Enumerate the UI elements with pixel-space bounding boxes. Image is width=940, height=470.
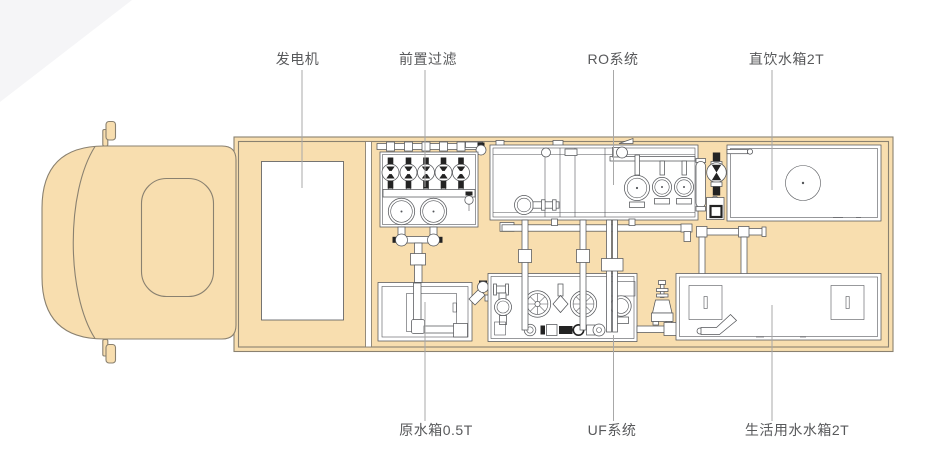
cab-outline bbox=[42, 146, 236, 339]
label-domestic-tank: 生活用水水箱2T bbox=[745, 423, 849, 438]
label-ro-system: RO系统 bbox=[588, 52, 639, 67]
domestic-water-tank bbox=[676, 274, 881, 341]
label-uf-system: UF系统 bbox=[588, 423, 637, 438]
mirror-bottom-head bbox=[106, 345, 116, 364]
label-prefilter: 前置过滤 bbox=[399, 52, 457, 67]
truck-layout-drawing bbox=[0, 0, 940, 470]
body-divider bbox=[366, 142, 372, 348]
label-generator: 发电机 bbox=[276, 52, 320, 67]
mirror-top-head bbox=[106, 122, 116, 141]
diagram-canvas: 发电机 前置过滤 RO系统 直饮水箱2T 原水箱0.5T UF系统 生活用水水箱… bbox=[0, 0, 940, 470]
label-raw-water-tank: 原水箱0.5T bbox=[399, 423, 473, 438]
ro-module bbox=[490, 139, 706, 221]
truck-cab bbox=[42, 122, 236, 364]
label-drinking-tank: 直饮水箱2T bbox=[749, 52, 824, 67]
drinking-water-tank bbox=[727, 145, 881, 221]
